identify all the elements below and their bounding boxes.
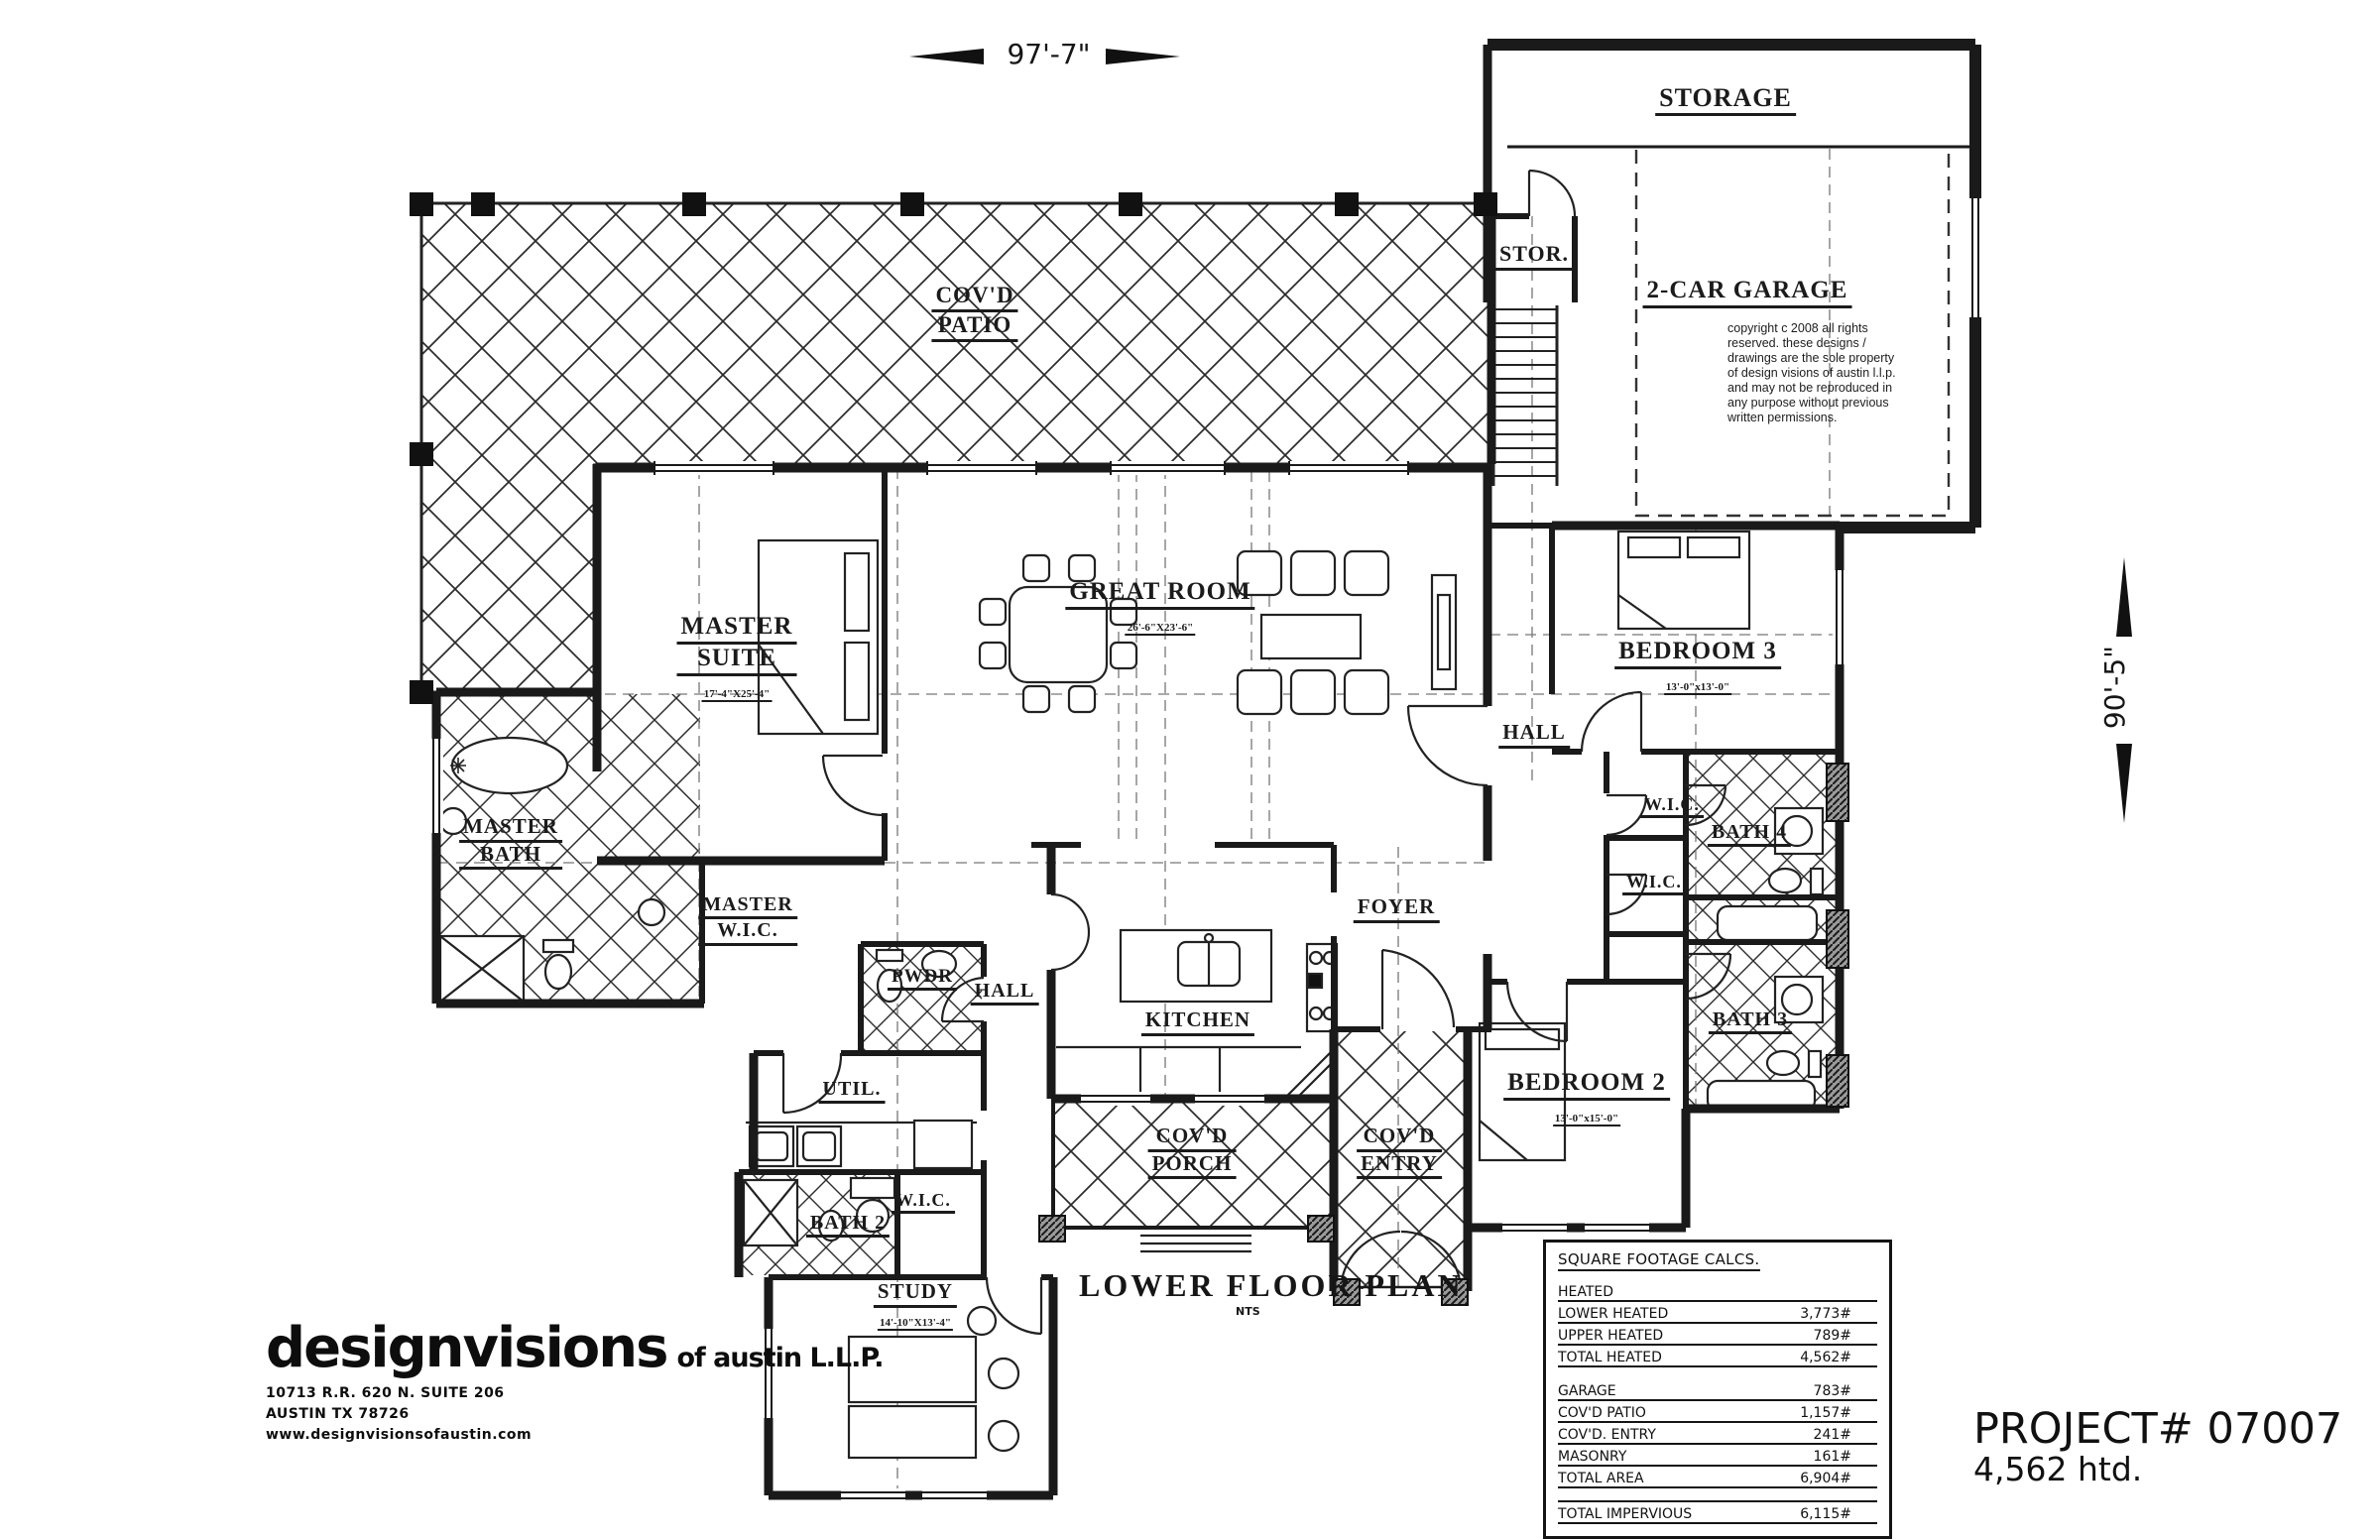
room-label-wic-bath4: W.I.C. (1640, 794, 1704, 818)
sqft-row: LOWER HEATED3,773# (1558, 1302, 1877, 1324)
sqft-row-label: GARAGE (1558, 1383, 1616, 1399)
sqft-row: COV'D. ENTRY241# (1558, 1423, 1877, 1445)
room-label-util: UTIL. (819, 1078, 886, 1104)
room-label-bath-3: BATH 3 (1709, 1008, 1792, 1034)
room-label-study: STUDY14'-10"X13'-4" (874, 1280, 957, 1331)
firm-address-line1: 10713 R.R. 620 N. SUITE 206 (266, 1383, 883, 1404)
room-label-covd-porch: COV'DPORCH (1148, 1125, 1237, 1179)
firm-name-bold: designvisions (266, 1316, 666, 1380)
plan-scale-note: NTS (1236, 1305, 1260, 1318)
sqft-row: HEATED (1558, 1280, 1877, 1302)
sqft-row-label: COV'D PATIO (1558, 1405, 1646, 1421)
sqft-row-label: COV'D. ENTRY (1558, 1427, 1656, 1443)
sqft-row-value: 4,562# (1800, 1350, 1877, 1365)
copyright-note: copyright c 2008 all rights reserved. th… (1727, 321, 1904, 425)
firm-address: 10713 R.R. 620 N. SUITE 206 AUSTIN TX 78… (266, 1383, 883, 1446)
sqft-row: UPPER HEATED789# (1558, 1324, 1877, 1346)
sqft-row: TOTAL HEATED4,562# (1558, 1346, 1877, 1367)
sqft-row-value: 161# (1814, 1449, 1877, 1465)
room-label-master-bath: MASTERBATH (459, 815, 562, 870)
firm-name: designvisionsof austin L.L.P. (266, 1321, 883, 1376)
project-number: PROJECT# 07007 (1973, 1408, 2342, 1451)
sqft-row-label: TOTAL IMPERVIOUS (1558, 1506, 1692, 1522)
sqft-row: TOTAL AREA6,904# (1558, 1467, 1877, 1488)
sqft-row-value: 6,904# (1800, 1471, 1877, 1486)
sqft-row: TOTAL IMPERVIOUS6,115# (1558, 1502, 1877, 1524)
sqft-row-label: TOTAL AREA (1558, 1471, 1644, 1486)
sqft-row-value: 3,773# (1800, 1306, 1877, 1322)
sqft-row: GARAGE783# (1558, 1379, 1877, 1401)
right-height-dimension: 90'-5" (2098, 627, 2140, 748)
sqft-row: COV'D PATIO1,157# (1558, 1401, 1877, 1423)
room-label-master-suite: MASTERSUITE17'-4"X25'-4" (677, 613, 797, 704)
room-label-bedroom-2: BEDROOM 213'-0"x15'-0" (1503, 1069, 1670, 1128)
floor-plan-sheet: STORAGESTOR.2-CAR GARAGECOV'DPATIOGREAT … (0, 0, 2380, 1540)
room-label-stor: STOR. (1495, 242, 1573, 271)
room-label-covd-patio: COV'DPATIO (931, 283, 1017, 342)
room-label-bath-2: BATH 2 (806, 1212, 890, 1238)
sqft-row-label: LOWER HEATED (1558, 1306, 1668, 1322)
firm-address-line2: AUSTIN TX 78726 (266, 1404, 883, 1425)
square-footage-title: SQUARE FOOTAGE CALCS. (1558, 1250, 1760, 1271)
sqft-row-value: 241# (1814, 1427, 1877, 1443)
room-label-bedroom-3: BEDROOM 313'-0"x13'-0" (1614, 638, 1781, 697)
room-label-kitchen: KITCHEN (1141, 1008, 1254, 1036)
room-label-two-car-garage: 2-CAR GARAGE (1643, 277, 1852, 308)
firm-logo-block: designvisionsof austin L.L.P. 10713 R.R.… (266, 1321, 883, 1446)
sqft-row-label: HEATED (1558, 1284, 1613, 1300)
room-label-covd-entry: COV'DENTRY (1357, 1125, 1442, 1179)
sqft-row-value: 6,115# (1800, 1506, 1877, 1522)
sqft-row-label: UPPER HEATED (1558, 1328, 1663, 1344)
plan-title: LOWER FLOOR PLAN (1079, 1267, 1464, 1304)
room-label-hall-center: HALL (971, 980, 1039, 1006)
sqft-row-label: MASONRY (1558, 1449, 1626, 1465)
firm-name-suffix: of austin L.L.P. (676, 1343, 883, 1373)
room-label-foyer: FOYER (1354, 895, 1440, 923)
room-label-wic-bath2: W.I.C. (892, 1190, 955, 1214)
sqft-spacer (1558, 1488, 1877, 1502)
project-block: PROJECT# 07007 4,562 htd. (1973, 1408, 2342, 1488)
room-label-hall-east: HALL (1498, 721, 1570, 749)
sqft-row-value: 783# (1814, 1383, 1877, 1399)
room-label-great-room: GREAT ROOM26'-6"X23'-6" (1065, 578, 1254, 638)
room-label-pwdr: PWDR (888, 966, 957, 991)
sqft-rows: HEATEDLOWER HEATED3,773#UPPER HEATED789#… (1558, 1280, 1877, 1524)
sqft-row-label: TOTAL HEATED (1558, 1350, 1662, 1365)
firm-website: www.designvisionsofaustin.com (266, 1425, 883, 1446)
sqft-row-value: 789# (1814, 1328, 1877, 1344)
square-footage-table: SQUARE FOOTAGE CALCS. HEATEDLOWER HEATED… (1543, 1240, 1892, 1539)
stairs (1493, 305, 1557, 486)
room-label-storage: STORAGE (1655, 83, 1796, 116)
project-heated-area: 4,562 htd. (1973, 1451, 2342, 1488)
room-label-wic-mid: W.I.C. (1622, 872, 1686, 895)
sqft-row: MASONRY161# (1558, 1445, 1877, 1467)
room-label-bath-4: BATH 4 (1708, 821, 1791, 847)
sqft-spacer (1558, 1367, 1877, 1379)
sqft-row-value: 1,157# (1800, 1405, 1877, 1421)
top-width-dimension: 97'-7" (987, 38, 1111, 70)
room-label-master-wic: MASTERW.I.C. (698, 893, 797, 946)
floor-plan-drawing (0, 0, 2380, 1540)
